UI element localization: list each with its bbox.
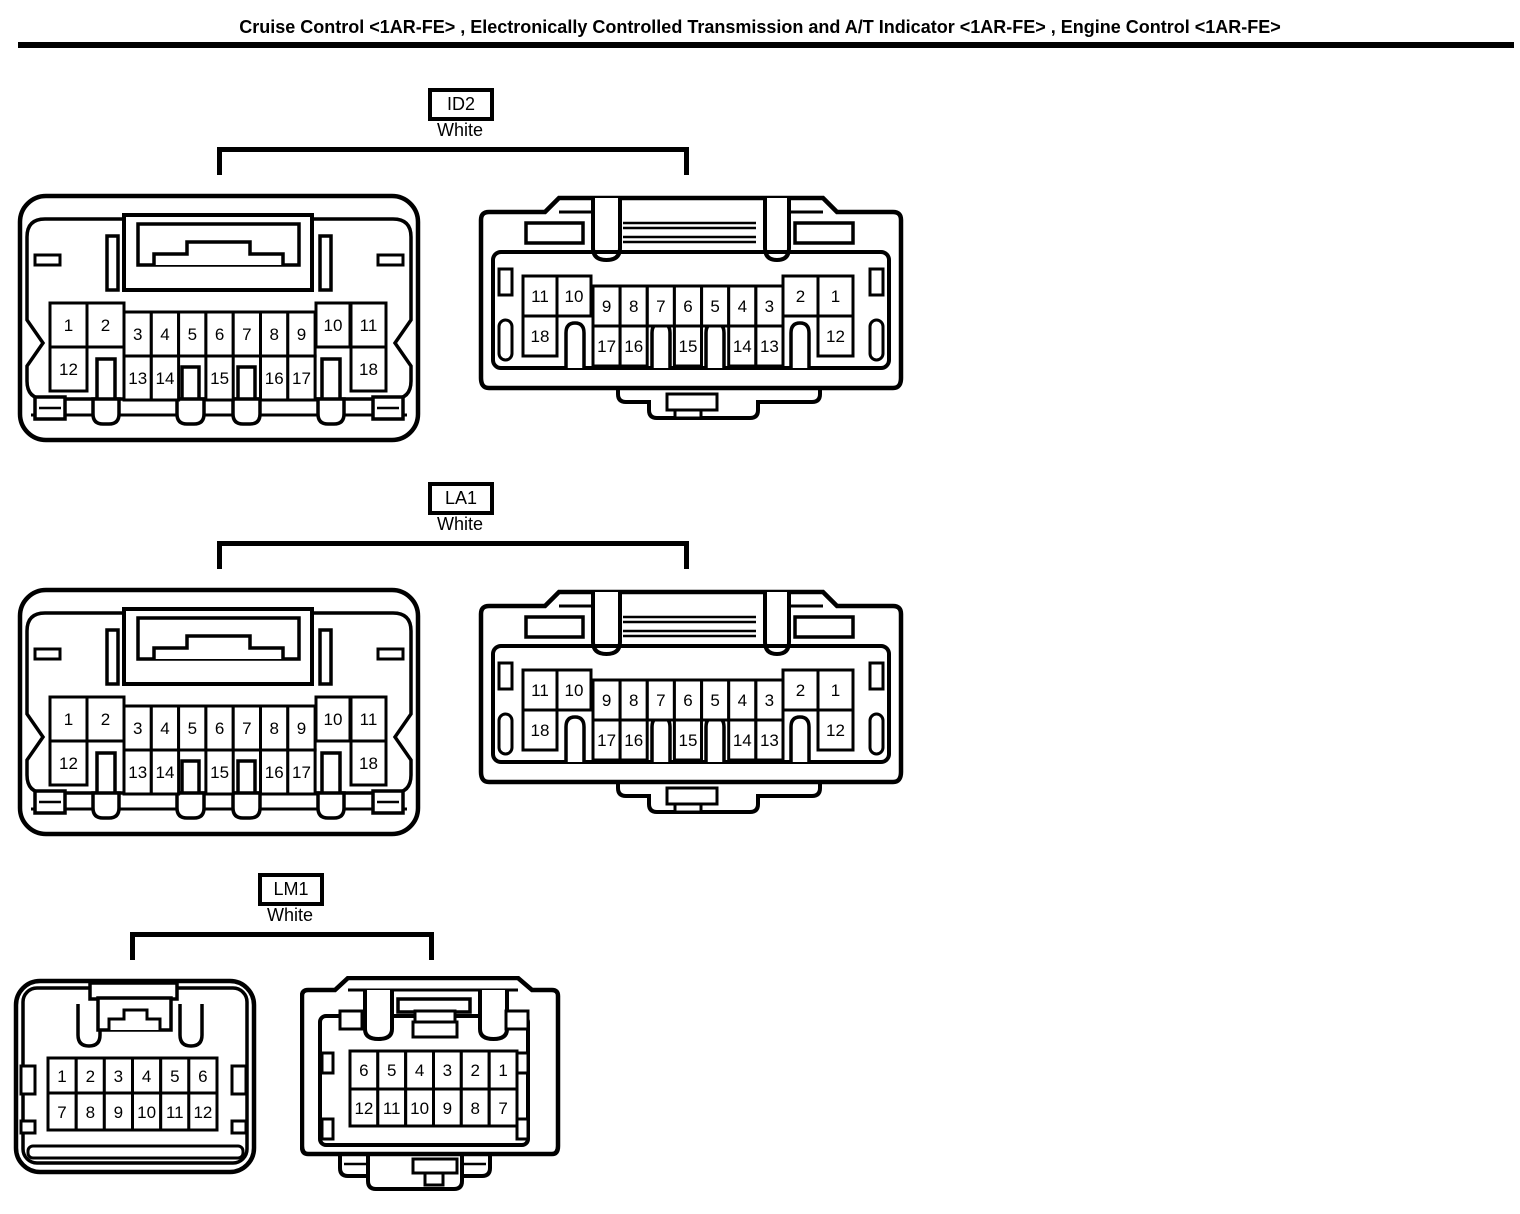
pin-number: 12 <box>193 1103 212 1122</box>
pin-number: 3 <box>114 1067 123 1086</box>
pin-number: 13 <box>760 337 779 356</box>
connector-drawing-LM1-right: 6 5 4 3 2 1 12 11 10 9 8 7 <box>300 976 564 1194</box>
key-tab <box>182 367 199 401</box>
pin-number: 14 <box>156 369 175 388</box>
pin-number: 12 <box>59 360 78 379</box>
connector-label-LA1: LA1 <box>428 482 494 515</box>
connector-label-ID2: ID2 <box>428 88 494 121</box>
pin-number: 8 <box>269 719 278 738</box>
pin-number: 17 <box>597 731 616 750</box>
pin-number: 18 <box>359 754 378 773</box>
pin-number: 7 <box>57 1103 66 1122</box>
pin-number: 1 <box>57 1067 66 1086</box>
mount-tab <box>618 388 820 418</box>
pin-number: 4 <box>738 297 747 316</box>
key-tab <box>182 761 199 795</box>
pin-number: 3 <box>443 1061 452 1080</box>
pin-number: 5 <box>710 297 719 316</box>
pin-number: 10 <box>565 287 584 306</box>
page-title: Cruise Control <1AR-FE> , Electronically… <box>0 17 1520 38</box>
pin-number: 4 <box>160 719 169 738</box>
connector-drawing-LA1-left: 1 2 3 4 5 6 7 8 9 10 11 12 13 14 15 16 1… <box>17 587 421 837</box>
pin-number: 7 <box>656 691 665 710</box>
pin-number: 6 <box>198 1067 207 1086</box>
pin-number: 15 <box>210 763 229 782</box>
bracket-LM1 <box>130 932 434 960</box>
pin-number: 1 <box>64 316 73 335</box>
pin-number: 1 <box>498 1061 507 1080</box>
pin-number: 12 <box>826 721 845 740</box>
pin-number: 2 <box>86 1067 95 1086</box>
connector-id: LA1 <box>445 488 477 509</box>
connector-id: ID2 <box>447 94 475 115</box>
connector-color-LM1: White <box>230 905 350 926</box>
pin-number: 17 <box>292 763 311 782</box>
key-tab <box>238 761 255 795</box>
pin-number: 12 <box>354 1099 373 1118</box>
connector-label-LM1: LM1 <box>258 873 324 906</box>
key-slot <box>706 323 724 368</box>
pin-number: 7 <box>656 297 665 316</box>
pin-number: 1 <box>831 287 840 306</box>
pin-number: 5 <box>387 1061 396 1080</box>
pin-number: 10 <box>410 1099 429 1118</box>
connector-drawing-ID2-left: 1 2 3 4 5 6 7 8 9 10 11 12 13 14 15 16 1… <box>17 193 421 443</box>
pin-number: 16 <box>624 731 643 750</box>
key-tab <box>97 753 115 795</box>
pin-number: 8 <box>86 1103 95 1122</box>
pin-number: 7 <box>498 1099 507 1118</box>
pin-number: 13 <box>128 369 147 388</box>
pin-number: 15 <box>210 369 229 388</box>
pin-number: 5 <box>170 1067 179 1086</box>
pin-number: 11 <box>531 287 549 306</box>
pin-number: 1 <box>64 710 73 729</box>
connector-color-ID2: White <box>400 120 520 141</box>
pin-number: 9 <box>443 1099 452 1118</box>
pin-number: 18 <box>359 360 378 379</box>
latch-arm <box>320 236 331 290</box>
pin-number: 14 <box>733 337 752 356</box>
pin-number: 14 <box>733 731 752 750</box>
pin-number: 10 <box>324 710 343 729</box>
pin-number: 3 <box>133 719 142 738</box>
pin-number: 12 <box>826 327 845 346</box>
pin-number: 15 <box>679 731 698 750</box>
pin-number: 2 <box>101 316 110 335</box>
pin-number: 16 <box>624 337 643 356</box>
pin-number: 12 <box>59 754 78 773</box>
pin-number: 7 <box>242 325 251 344</box>
connector-drawing-ID2-right: 11 10 9 8 7 6 5 4 3 2 1 18 17 16 15 14 1… <box>473 190 909 432</box>
key-tab <box>322 753 340 795</box>
pin-number: 11 <box>360 710 378 729</box>
pin-number: 7 <box>242 719 251 738</box>
pin-number: 6 <box>215 719 224 738</box>
mount-tab <box>618 782 820 812</box>
pin-number: 9 <box>297 325 306 344</box>
latch-arm <box>107 236 118 290</box>
key-slot <box>706 717 724 762</box>
lock-prong <box>365 990 392 1039</box>
pin-number: 10 <box>565 681 584 700</box>
pin-number: 6 <box>215 325 224 344</box>
pin-number: 9 <box>602 297 611 316</box>
lock-prong <box>480 990 507 1039</box>
pin-number: 8 <box>470 1099 479 1118</box>
pin-number: 1 <box>831 681 840 700</box>
pin-number: 8 <box>629 297 638 316</box>
pin-number: 11 <box>383 1099 401 1118</box>
pin-number: 5 <box>188 719 197 738</box>
key-slot <box>652 717 670 762</box>
pin-number: 2 <box>470 1061 479 1080</box>
pin-number: 11 <box>166 1103 184 1122</box>
pin-number: 8 <box>629 691 638 710</box>
pin-number: 17 <box>597 337 616 356</box>
pin-number: 6 <box>683 691 692 710</box>
pin-number: 2 <box>796 681 805 700</box>
pin-number: 9 <box>602 691 611 710</box>
key-slot <box>652 323 670 368</box>
connector-drawing-LA1-right: 11 10 9 8 7 6 5 4 3 2 1 18 17 16 15 14 1… <box>473 584 909 826</box>
pin-number: 2 <box>101 710 110 729</box>
key-slot <box>791 323 809 368</box>
pin-number: 13 <box>760 731 779 750</box>
latch-arm <box>320 630 331 684</box>
pin-number: 3 <box>765 297 774 316</box>
pin-number: 16 <box>265 369 284 388</box>
pin-number: 14 <box>156 763 175 782</box>
key-slot <box>566 323 584 368</box>
connector-color-LA1: White <box>400 514 520 535</box>
pin-number: 3 <box>765 691 774 710</box>
connector-pinout-page: Cruise Control <1AR-FE> , Electronically… <box>0 0 1520 1214</box>
pin-number: 5 <box>710 691 719 710</box>
pin-number: 2 <box>796 287 805 306</box>
latch-arm <box>107 630 118 684</box>
pin-number: 6 <box>683 297 692 316</box>
key-tab <box>238 367 255 401</box>
pin-number: 11 <box>531 681 549 700</box>
key-slot <box>566 717 584 762</box>
key-slot <box>791 717 809 762</box>
pin-number: 18 <box>531 327 550 346</box>
pin-grid: 1 2 3 4 5 6 7 8 9 10 11 12 <box>48 1058 217 1130</box>
pin-number: 15 <box>679 337 698 356</box>
pin-number: 4 <box>415 1061 424 1080</box>
connector-id: LM1 <box>273 879 308 900</box>
pin-grid: 6 5 4 3 2 1 12 11 10 9 8 7 <box>350 1051 517 1126</box>
pin-number: 6 <box>359 1061 368 1080</box>
pin-number: 5 <box>188 325 197 344</box>
bracket-ID2 <box>217 147 689 175</box>
key-tab <box>97 359 115 401</box>
pin-number: 17 <box>292 369 311 388</box>
pin-number: 8 <box>269 325 278 344</box>
bracket-LA1 <box>217 541 689 569</box>
pin-number: 9 <box>114 1103 123 1122</box>
pin-number: 9 <box>297 719 306 738</box>
pin-number: 11 <box>360 316 378 335</box>
pin-number: 10 <box>324 316 343 335</box>
pin-number: 16 <box>265 763 284 782</box>
latch-arm <box>180 1004 202 1046</box>
connector-drawing-LM1-left: 1 2 3 4 5 6 7 8 9 10 11 12 <box>13 978 257 1178</box>
pin-number: 3 <box>133 325 142 344</box>
pin-number: 18 <box>531 721 550 740</box>
title-underline <box>18 42 1514 48</box>
pin-number: 4 <box>160 325 169 344</box>
key-tab <box>322 359 340 401</box>
pin-number: 4 <box>142 1067 151 1086</box>
pin-number: 4 <box>738 691 747 710</box>
pin-number: 13 <box>128 763 147 782</box>
pin-number: 10 <box>137 1103 156 1122</box>
